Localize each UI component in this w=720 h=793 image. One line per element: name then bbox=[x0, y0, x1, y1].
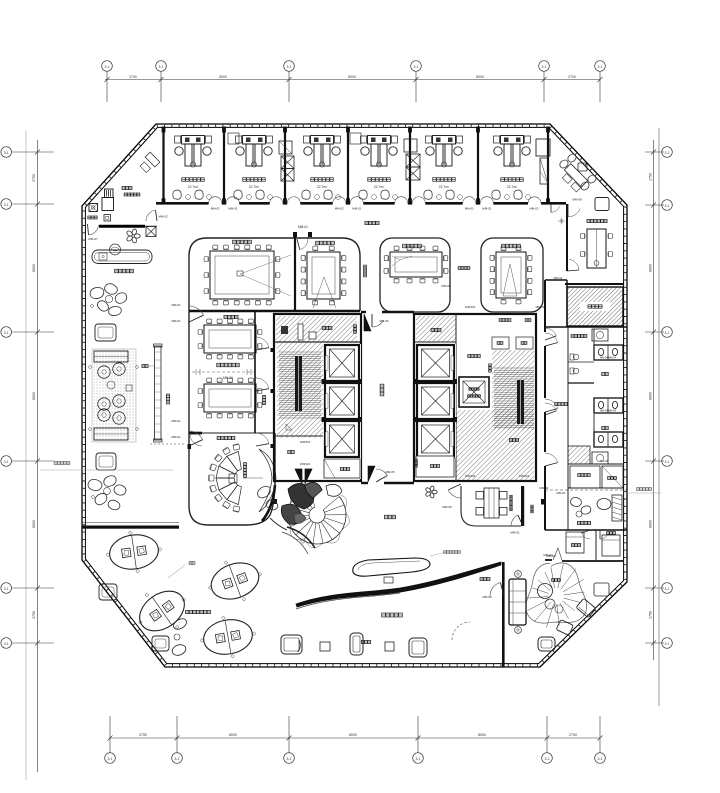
svg-text:3-1: 3-1 bbox=[159, 65, 164, 69]
svg-text:MM-05: MM-05 bbox=[386, 470, 395, 474]
svg-text:MM-03: MM-03 bbox=[543, 553, 553, 557]
svg-text:MM-02: MM-02 bbox=[352, 206, 361, 210]
svg-text:8000: 8000 bbox=[32, 392, 36, 400]
svg-text:FM1524: FM1524 bbox=[300, 462, 311, 466]
svg-text:1750: 1750 bbox=[649, 173, 653, 181]
svg-text:3-1: 3-1 bbox=[4, 331, 9, 335]
svg-text:22.7m²: 22.7m² bbox=[188, 185, 199, 189]
svg-text:MM-01: MM-01 bbox=[510, 531, 520, 535]
svg-text:22.7m²: 22.7m² bbox=[317, 185, 328, 189]
svg-text:3-1: 3-1 bbox=[4, 642, 9, 646]
svg-text:8000: 8000 bbox=[229, 733, 237, 737]
svg-text:FM1524: FM1524 bbox=[300, 440, 311, 444]
svg-text:MM-02: MM-02 bbox=[536, 305, 545, 309]
svg-text:MM-02: MM-02 bbox=[482, 206, 491, 210]
svg-text:3-1: 3-1 bbox=[545, 757, 550, 761]
svg-text:3-1: 3-1 bbox=[665, 587, 670, 591]
svg-text:3750: 3750 bbox=[139, 733, 147, 737]
svg-text:MM-02: MM-02 bbox=[530, 206, 539, 210]
svg-text:MM-01: MM-01 bbox=[298, 225, 308, 229]
svg-text:MM-07: MM-07 bbox=[88, 237, 98, 241]
svg-text:3-1: 3-1 bbox=[665, 331, 670, 335]
svg-text:FM1524: FM1524 bbox=[519, 474, 530, 478]
svg-text:3-1: 3-1 bbox=[105, 65, 110, 69]
svg-text:MM-06: MM-06 bbox=[442, 505, 452, 509]
svg-text:MM-01: MM-01 bbox=[556, 491, 566, 495]
svg-text:MM-04 MM-04: MM-04 MM-04 bbox=[600, 410, 617, 413]
svg-text:3-1: 3-1 bbox=[287, 757, 292, 761]
svg-text:3-1: 3-1 bbox=[4, 460, 9, 464]
svg-text:8000: 8000 bbox=[476, 75, 484, 79]
svg-text:3-1: 3-1 bbox=[4, 587, 9, 591]
svg-text:MM-02: MM-02 bbox=[465, 206, 474, 210]
svg-text:3-1: 3-1 bbox=[598, 757, 603, 761]
svg-text:MM-02: MM-02 bbox=[554, 276, 563, 280]
svg-text:3750: 3750 bbox=[32, 174, 36, 182]
svg-text:MM-01: MM-01 bbox=[171, 319, 181, 323]
svg-text:1750: 1750 bbox=[649, 611, 653, 619]
svg-text:3750: 3750 bbox=[32, 611, 36, 619]
svg-text:3-1: 3-1 bbox=[4, 203, 9, 207]
svg-text:3-1: 3-1 bbox=[287, 65, 292, 69]
svg-text:MM-02: MM-02 bbox=[211, 206, 220, 210]
svg-text:MM-01: MM-01 bbox=[171, 303, 181, 307]
svg-text:8000: 8000 bbox=[478, 733, 486, 737]
svg-text:8000: 8000 bbox=[219, 75, 227, 79]
svg-text:2700: 2700 bbox=[568, 75, 576, 79]
svg-text:MM-02: MM-02 bbox=[158, 215, 168, 219]
svg-text:3-1: 3-1 bbox=[175, 757, 180, 761]
svg-text:8000: 8000 bbox=[32, 520, 36, 528]
svg-text:3-1: 3-1 bbox=[665, 151, 670, 155]
svg-text:2700: 2700 bbox=[569, 733, 577, 737]
svg-text:22.7m²: 22.7m² bbox=[249, 185, 260, 189]
svg-text:8000: 8000 bbox=[348, 75, 356, 79]
svg-text:2700: 2700 bbox=[129, 75, 137, 79]
svg-text:3-1: 3-1 bbox=[542, 65, 547, 69]
svg-text:MM-01: MM-01 bbox=[171, 435, 181, 439]
svg-text:3-1: 3-1 bbox=[665, 460, 670, 464]
svg-text:22.7m²: 22.7m² bbox=[439, 185, 450, 189]
svg-text:MM-02: MM-02 bbox=[335, 206, 344, 210]
svg-text:FM1529: FM1529 bbox=[465, 474, 476, 478]
svg-text:3-1: 3-1 bbox=[4, 151, 9, 155]
svg-text:3-1: 3-1 bbox=[665, 204, 670, 208]
svg-text:FM1524: FM1524 bbox=[465, 305, 476, 309]
svg-text:MM-04 MM-04: MM-04 MM-04 bbox=[600, 357, 617, 360]
svg-text:MM-08: MM-08 bbox=[572, 198, 582, 202]
svg-text:MM-05: MM-05 bbox=[380, 319, 389, 323]
svg-text:8000: 8000 bbox=[649, 392, 653, 400]
svg-text:MM-02: MM-02 bbox=[228, 206, 237, 210]
svg-text:8000: 8000 bbox=[649, 520, 653, 528]
svg-text:3-1: 3-1 bbox=[416, 757, 421, 761]
svg-text:MM-01: MM-01 bbox=[171, 419, 181, 423]
svg-text:3-1: 3-1 bbox=[414, 65, 419, 69]
svg-text:MM-08: MM-08 bbox=[441, 284, 451, 288]
svg-text:8000: 8000 bbox=[32, 264, 36, 272]
svg-text:3-1: 3-1 bbox=[598, 65, 603, 69]
svg-text:22.7m²: 22.7m² bbox=[374, 185, 385, 189]
svg-text:8000: 8000 bbox=[349, 733, 357, 737]
svg-text:MM-09: MM-09 bbox=[482, 595, 492, 599]
svg-text:3-1: 3-1 bbox=[108, 757, 113, 761]
svg-text:8000: 8000 bbox=[649, 264, 653, 272]
svg-text:22.7m²: 22.7m² bbox=[507, 185, 518, 189]
svg-text:3-1: 3-1 bbox=[665, 642, 670, 646]
